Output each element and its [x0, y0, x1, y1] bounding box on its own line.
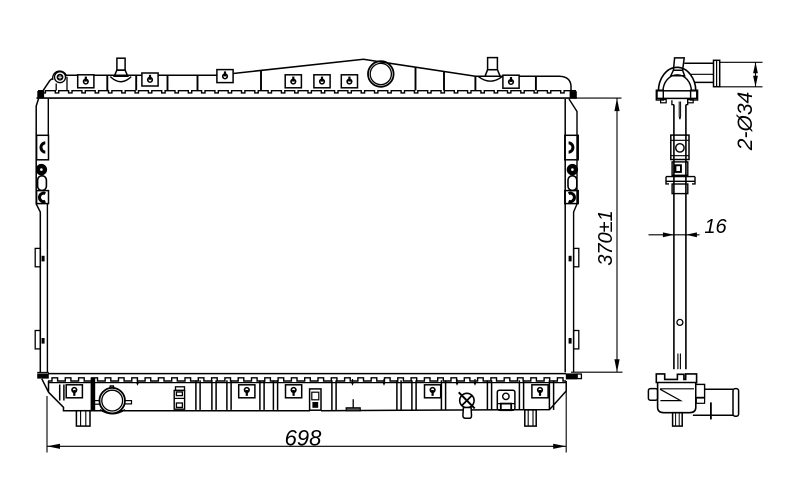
- svg-text:16: 16: [704, 216, 727, 238]
- svg-text:698: 698: [285, 425, 322, 450]
- svg-text:370±1: 370±1: [595, 210, 617, 265]
- svg-text:2-Ø34: 2-Ø34: [734, 92, 757, 151]
